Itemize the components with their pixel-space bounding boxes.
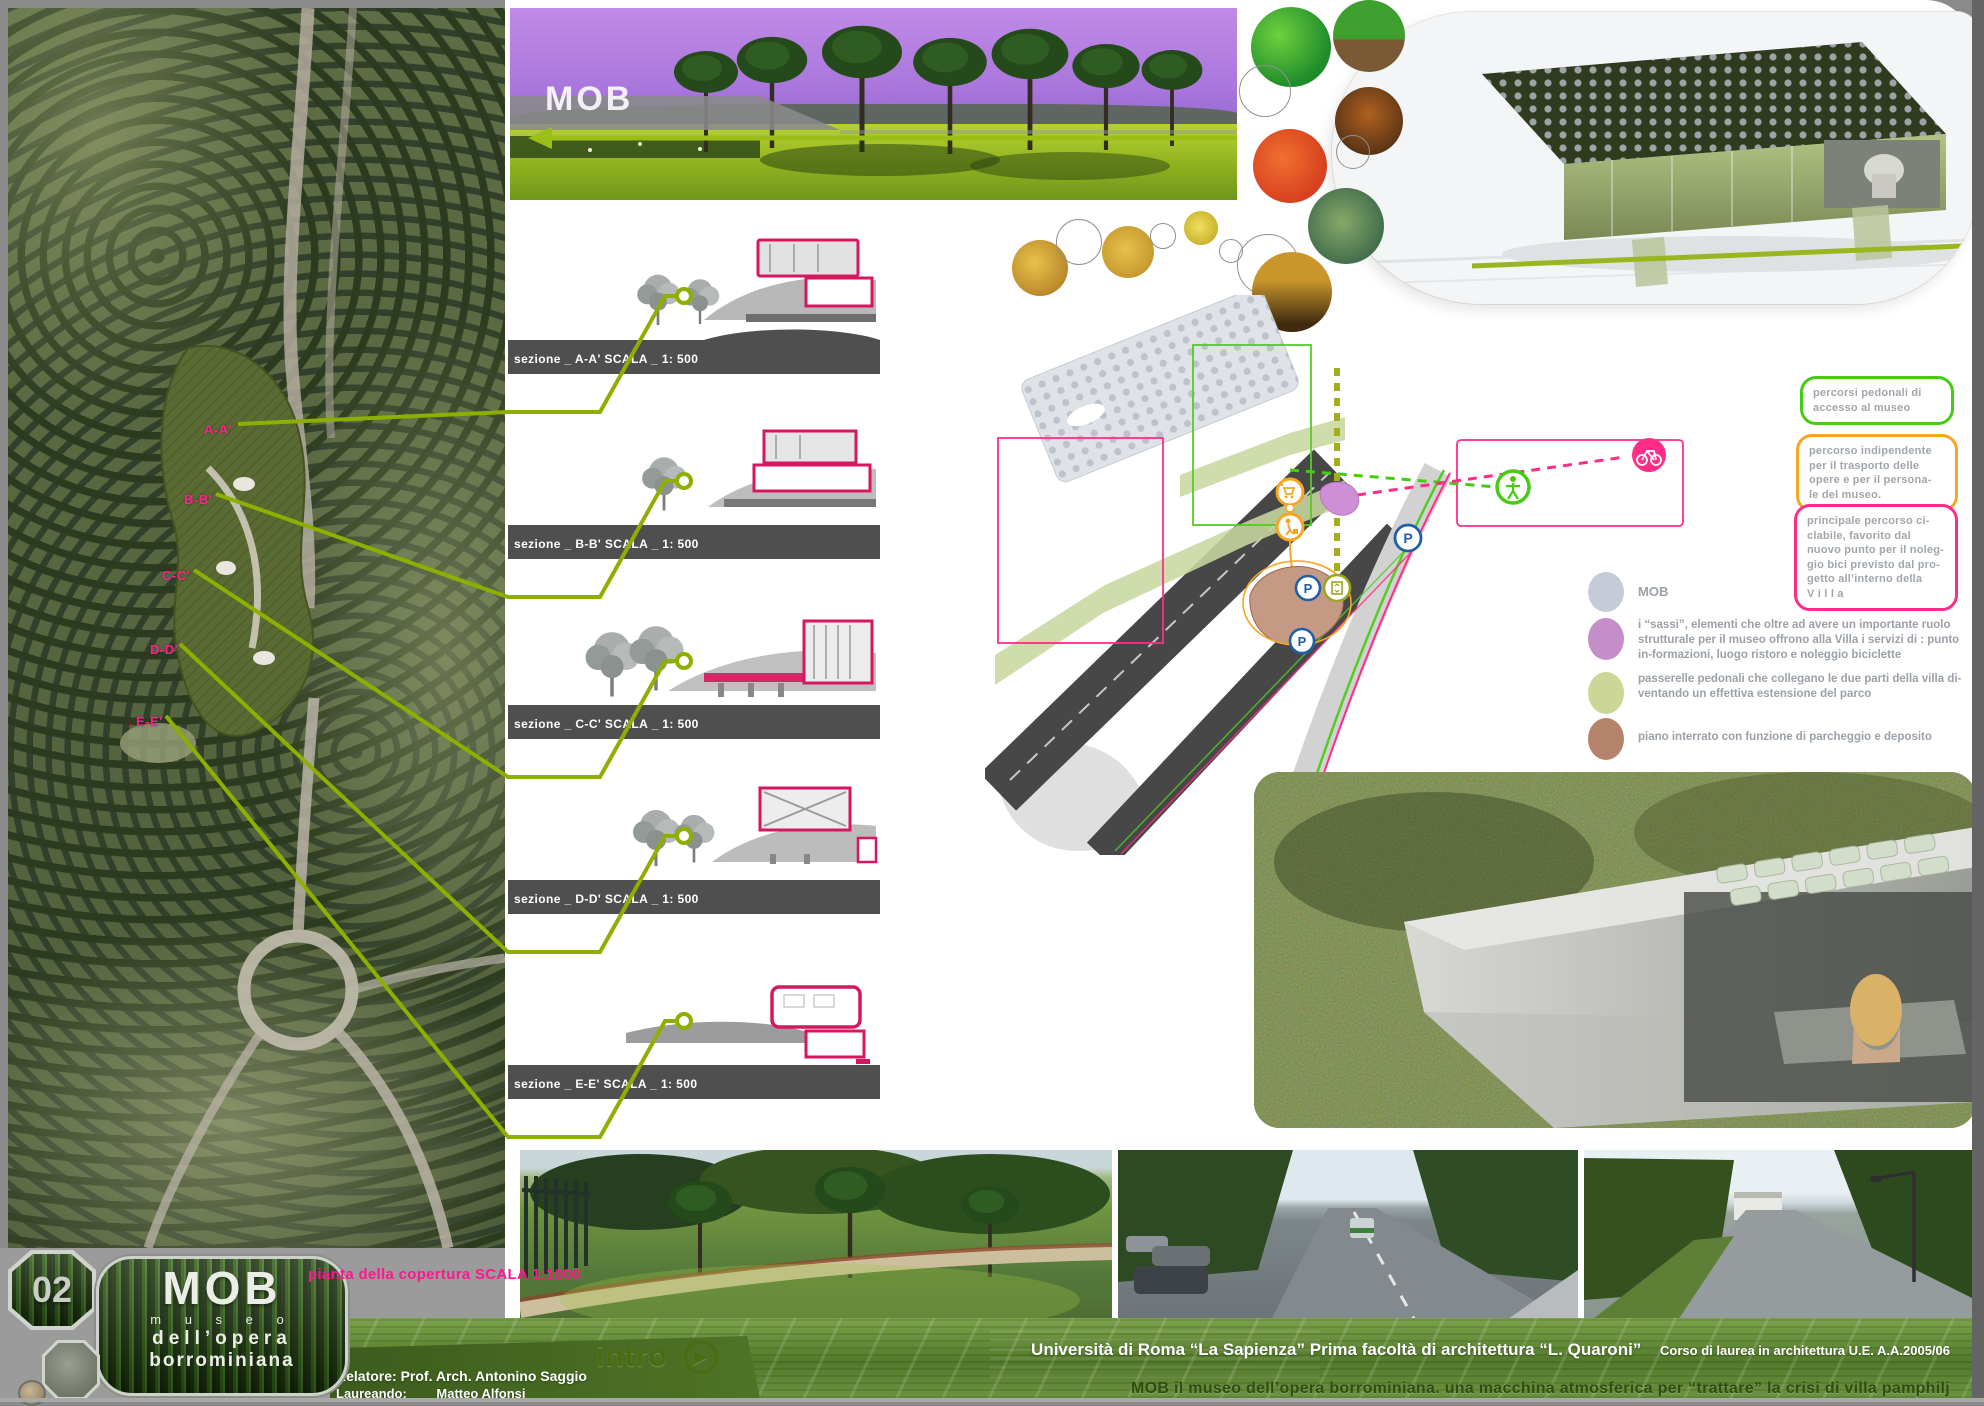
road-photo	[1584, 1150, 1976, 1326]
building-render-card	[1332, 12, 1978, 304]
pedestrian-icon	[1497, 471, 1529, 503]
section-drawing-bb: sezione _ B-B' SCALA _ 1: 500	[508, 407, 888, 561]
section-drawing-cc: sezione _ C-C' SCALA _ 1: 500	[508, 587, 888, 741]
porter-icon	[1277, 514, 1303, 540]
svg-text:P: P	[1298, 634, 1307, 649]
outline-circle-tiny	[1219, 239, 1243, 263]
section-marker-dd: D-D'	[150, 642, 178, 657]
section-label-ee: sezione _ E-E' SCALA _ 1: 500	[514, 1077, 697, 1091]
park-path-photo	[520, 1150, 1112, 1326]
red-leaves-photo-circle	[1253, 129, 1327, 203]
logo-sub3: borrominiana	[99, 1350, 345, 1372]
interior-render-card	[1254, 772, 1976, 1128]
site-plan-caption: pianta della copertura SCALA 1:1000	[308, 1266, 581, 1283]
section-marker-bb: B-B'	[184, 492, 212, 507]
lilypad-photo-circle	[1308, 188, 1384, 264]
parking-icon: P	[1395, 525, 1421, 551]
sassi-legend-dot	[1588, 618, 1624, 660]
section-marker-aa: A-A'	[204, 422, 232, 437]
section-label-aa: sezione _ A-A' SCALA _ 1: 500	[514, 352, 698, 366]
logo-sub1: m u s e o	[99, 1312, 345, 1327]
outline-circle	[1056, 219, 1102, 265]
section-label-dd: sezione _ D-D' SCALA _ 1: 500	[514, 892, 699, 906]
board-right-strip	[1972, 0, 1984, 1398]
shell-icon	[18, 1380, 46, 1406]
grass-roots-photo-circle	[1333, 0, 1405, 72]
mob-legend-dot	[1588, 572, 1624, 612]
section-drawing-ee: sezione _ E-E' SCALA _ 1: 500	[508, 947, 888, 1101]
board-bottom-strip	[0, 1398, 1984, 1402]
section-label-cc: sezione _ C-C' SCALA _ 1: 500	[514, 717, 699, 731]
bike-icon	[1632, 438, 1666, 472]
relatore-line: Relatore: Prof. Arch. Antonino Saggio	[336, 1368, 587, 1384]
university-text: Università di Roma “La Sapienza” Prima f…	[1031, 1340, 1641, 1359]
street-photo	[1118, 1150, 1578, 1326]
panorama-mob-label: MOB	[545, 80, 633, 119]
outline-circle	[1239, 65, 1291, 117]
seeds-photo-circle	[1102, 226, 1154, 278]
panorama-photo: MOB	[510, 8, 1237, 200]
elevator-icon	[1324, 575, 1350, 601]
panel-number: 02	[32, 1269, 72, 1311]
svg-text:P: P	[1403, 530, 1412, 546]
arrow-right-icon[interactable]: ▶	[684, 1340, 718, 1374]
building-render-graphics	[1332, 12, 1978, 304]
legend-label-interrato: piano interrato con funzione di parchegg…	[1638, 730, 1968, 745]
parking-icon: P	[1296, 576, 1320, 600]
service-route-note: percorso indipendente per il trasporto d…	[1796, 434, 1958, 512]
section-drawing-dd: sezione _ D-D' SCALA _ 1: 500	[508, 762, 888, 916]
panel-number-badge: 02	[12, 1254, 92, 1326]
university-line: Università di Roma “La Sapienza” Prima f…	[770, 1340, 1950, 1360]
aerial-site-plan: A-A' B-B' C-C' D-D' E-E'	[8, 8, 505, 1248]
parking-icon: P	[1290, 629, 1314, 653]
intro-label[interactable]: intro	[596, 1340, 668, 1374]
hand-photo-hex	[45, 1343, 97, 1397]
lemon-photo-circle	[1184, 211, 1218, 245]
passerelle-legend-dot	[1588, 672, 1624, 714]
section-marker-ee: E-E'	[136, 714, 163, 729]
plus-icon	[1286, 504, 1294, 512]
outline-circle-small	[1336, 135, 1370, 169]
aerial-overlay-graphics	[8, 8, 505, 1248]
diagram-legend: MOB i “sassi”, elementi che oltre ad ave…	[1588, 572, 1978, 772]
section-marker-cc: C-C'	[162, 568, 190, 583]
course-text: Corso di laurea in architettura U.E. A.A…	[1660, 1343, 1950, 1358]
logo-sub2: dell’opera	[99, 1328, 345, 1350]
interior-render-graphics	[1254, 772, 1976, 1128]
cart-icon	[1277, 479, 1303, 505]
intro-nav[interactable]: intro ▶	[596, 1340, 718, 1374]
interrato-legend-dot	[1588, 718, 1624, 760]
pedestrian-route-note: percorsi pedonali di accesso al museo	[1800, 376, 1954, 425]
legend-label-sassi: i “sassi”, elementi che oltre ad avere u…	[1638, 618, 1968, 663]
legend-label-mob: MOB	[1638, 584, 1968, 601]
section-label-bb: sezione _ B-B' SCALA _ 1: 500	[514, 537, 699, 551]
outline-circle-tiny	[1150, 223, 1176, 249]
section-drawing-aa: sezione _ A-A' SCALA _ 1: 500	[508, 222, 888, 376]
svg-text:P: P	[1304, 581, 1313, 596]
project-title-line: MOB il museo dell’opera borrominiana. un…	[770, 1380, 1950, 1398]
legend-label-passerelle: passerelle pedonali che collegano le due…	[1638, 672, 1968, 702]
